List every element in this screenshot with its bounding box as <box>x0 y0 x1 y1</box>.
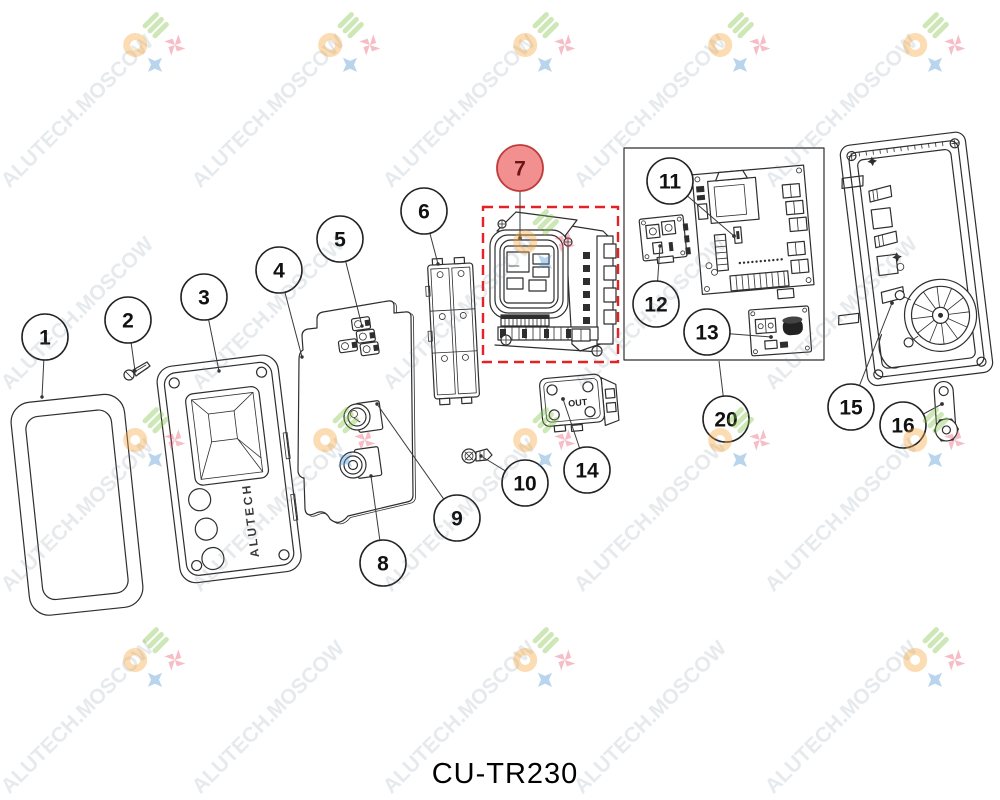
svg-text:13: 13 <box>695 322 718 345</box>
svg-text:ALUTECH.MOSCOW: ALUTECH.MOSCOW <box>761 435 923 597</box>
part-2-screw <box>124 362 150 380</box>
svg-text:ALUTECH.MOSCOW: ALUTECH.MOSCOW <box>0 637 158 799</box>
svg-text:ALUTECH.MOSCOW: ALUTECH.MOSCOW <box>188 637 350 799</box>
svg-text:15: 15 <box>839 397 863 420</box>
part-10-screw <box>462 449 492 463</box>
svg-text:6: 6 <box>418 201 430 224</box>
svg-text:ALUTECH.MOSCOW: ALUTECH.MOSCOW <box>761 637 923 799</box>
callout-15: 15 <box>828 384 874 430</box>
parts-diagram-page: ALUTECH <box>0 0 1000 800</box>
part-7-control-unit <box>490 212 616 356</box>
callout-2: 2 <box>105 297 151 343</box>
svg-text:14: 14 <box>575 460 599 483</box>
callout-13: 13 <box>684 309 730 355</box>
callout-6: 6 <box>401 188 447 234</box>
out-label: OUT <box>568 397 588 409</box>
callout-3: 3 <box>181 274 227 320</box>
svg-text:7: 7 <box>514 158 526 181</box>
part-11-main-pcb <box>692 165 815 305</box>
svg-text:ALUTECH.MOSCOW: ALUTECH.MOSCOW <box>570 637 732 799</box>
svg-text:2: 2 <box>122 310 134 333</box>
svg-text:10: 10 <box>513 473 536 496</box>
callout-14: 14 <box>564 447 610 493</box>
figure-caption: CU-TR230 <box>432 758 579 790</box>
exploded-parts-diagram: ALUTECH <box>0 0 1000 800</box>
svg-text:11: 11 <box>659 171 682 194</box>
svg-text:3: 3 <box>198 287 210 310</box>
part-12-small-pcb <box>639 214 692 265</box>
callout-7-highlighted: 7 <box>497 145 543 191</box>
svg-text:4: 4 <box>273 260 285 283</box>
callout-11: 11 <box>647 158 693 204</box>
watermark-layer: ALUTECH.MOSCOW ALUTECH.MOSCOW ALUTECH.MO… <box>0 11 970 798</box>
